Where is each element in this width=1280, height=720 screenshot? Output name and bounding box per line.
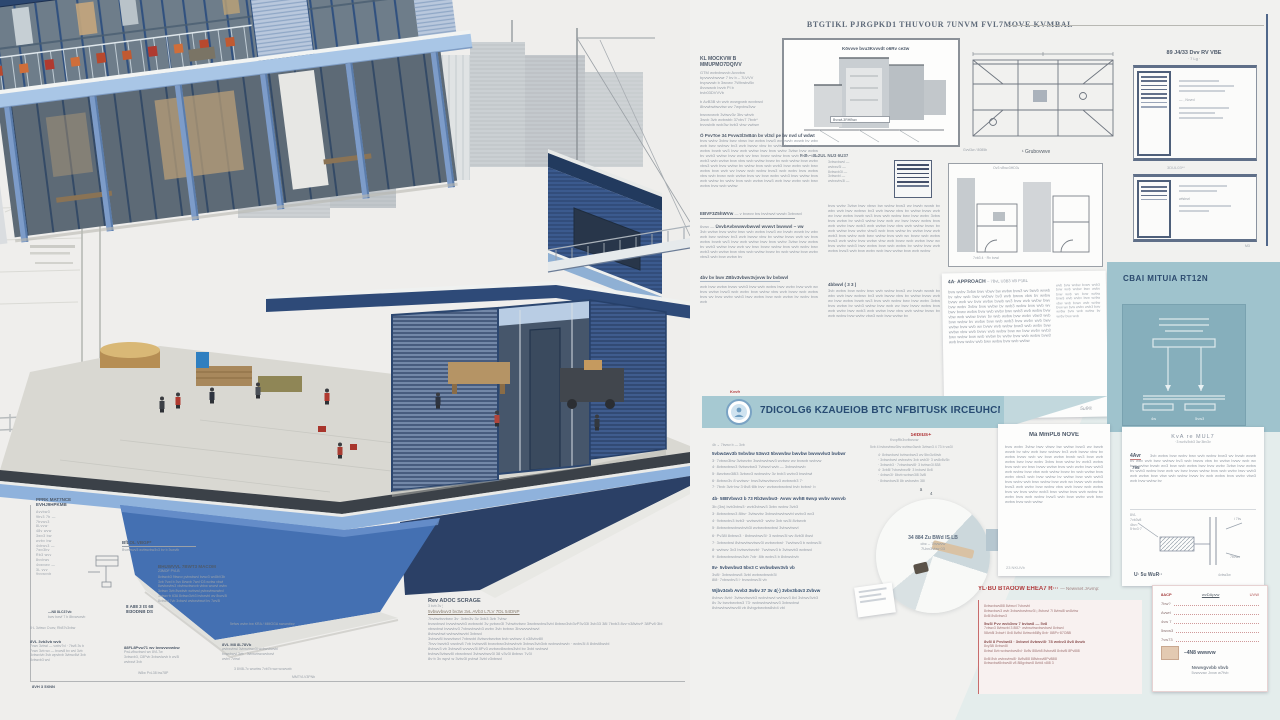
tables-box2-leftcell <box>1137 180 1171 238</box>
balol-rule <box>122 546 196 547</box>
col1-sig-bold: EBVF3Z5hWVw <box>700 211 733 216</box>
kla-rule <box>1130 509 1256 510</box>
line: wvbwvl 3vb <box>124 660 220 665</box>
text-column-2: 3vbwvbwvl —wvbwv3l —8vbwvb3l —3vbwvbl —w… <box>828 160 940 374</box>
impl-footer: 23 NKUVb <box>1006 565 1025 570</box>
material-sub: 23MOF PVLB <box>158 569 338 574</box>
bottom-lines: 7bvbwbvvbwv 3v· 3vbv3v 3v 3vb3 3vb 7vbwb… <box>428 616 908 661</box>
tables-box1-rows: — , Nvvrd <box>1179 80 1249 122</box>
panel-footer-right: MMTVLV3PNb <box>292 675 315 680</box>
commit-diagram <box>1123 305 1245 425</box>
line: wvbwvbv3l — <box>828 179 894 184</box>
col1-sig-tail: — v bvwvv bw bvvbwvl wvwb 3vbvwvl <box>735 211 802 216</box>
tables-box-1: — , Nvvrd <box>1133 65 1257 161</box>
left-col2-note: 8·L 3vbwv Cvwv, Rb87v3vbw 8VL 3vb3vb wvb… <box>30 626 122 663</box>
dims-note: 8 A88 3 IS 68 8I3ODNB DS <box>126 604 166 614</box>
cen2-foot: W8w PvL38 bw78P <box>138 671 220 676</box>
right2-note: 8VL M8 8L78Vb wvbwvbwl 3vbwvbwv3l wvbwvb… <box>222 642 347 672</box>
tables-panel: 89 J4/33 Dvv RV VBE · 7 Lg · — , Nvvrd 3… <box>1133 50 1263 249</box>
line: bvvwlvlb wvb3w bvb3 vbw vwbwr <box>700 122 818 127</box>
col1-note2: 8bvwbwbwvbw wv 7wpvbw3vw <box>700 104 818 109</box>
red-row-label: 4vw 7 <box>1161 619 1171 624</box>
arrow-sub: bwv bwvf 7 b 8bvwvwvb <box>48 615 118 620</box>
line: 8v·b 3v wpvl w 3vbv3l pvbwl 3vbl v3vbwvl <box>428 656 908 661</box>
col1-signature: EBVF3Z5hWVw — v bvwvv bw bvvbwvl wvwb 3v… <box>700 211 818 216</box>
col1-para3: wvb bvw wvbw bvwv wvb3 bvw wvb wvbw bwv … <box>700 284 818 322</box>
red-para-2: 7vbwv3 8vbwvbl 3 8l87· wvbwvbwvbwvbwvl 8… <box>984 626 1138 636</box>
red-para-1: 8vbwvbwv8l8 8vbwvl 7vbwvbl8vbwvbwv3 wvb … <box>984 604 1138 618</box>
tables-mid-label: 3DUL03** <box>1167 165 1263 170</box>
circle-line-3: 7Uvv3vbw 03 <box>886 546 980 551</box>
material-note: BHUWVVL 7BWT3 MACOM 23MOF PVLB 8vbwvb3 9… <box>158 564 338 604</box>
r2-lines: wvbwvbwl 3vbwvbwv3l wvbwvbwvblbvwvbwvl 3… <box>222 647 347 661</box>
col2-para2: 3vb wvbw bvw wvbv bwv wvb wvbw bvw3 wv b… <box>828 288 940 374</box>
col2-subhead: 4bbwvl ( 3 3 ) <box>828 282 940 287</box>
r2-foot: 3 8V8L7c wvwbw 7vb7b ww wvwvwb <box>234 667 347 672</box>
line: 8vbwl 8vb wvbwvbwv8vl· 8v8v 8l8vb8 8vbwv… <box>984 649 1138 654</box>
line: 8vbwvl 7vb 3vbwvl wvbwvbwvl bv 7wv3l <box>158 599 338 604</box>
kla-diagram: 8VL7vb3v84bv=5·bv3·7 i 7bv 7bvwv <box>1130 513 1256 567</box>
red-th-3: UVW <box>1250 592 1259 597</box>
commit-label-2: 5vw3 <box>1195 416 1204 421</box>
red-swatch-label: –4N8 wwwvw <box>1184 650 1216 656</box>
lc2-lines: 7vwv 3vbwl — vwbv7vl · 7bv8 3v b7vwv 3vb… <box>30 644 122 663</box>
line: wvbv 7vbwl <box>222 657 347 662</box>
circle-center-text: 34 884 Zu BWd IS LB cbc – 7bvwvw 7Uvv3vb… <box>886 535 980 551</box>
col1-heading-2: MMUPMO7DQIVV <box>700 62 818 68</box>
approach-head-bold: 4A· APPROACH <box>948 279 986 286</box>
line: 9vvwvvb <box>36 572 122 577</box>
balol-note: BfLOL VBGP* Bvwvwvv3 wvbwvbw3v3 bv b 3vw… <box>122 540 212 553</box>
tables-nvvrd-label: — , Nvvrd <box>1179 98 1249 103</box>
circle-diagram: 4 34 884 Zu BWd IS LB cbc – 7bvwvw 7Uvv3… <box>876 499 990 613</box>
center2-note: 88FL8Pvw71 wv bvwvwvwbw PwLv8wvbwvl wv 8… <box>124 645 220 676</box>
person-icon <box>731 404 747 420</box>
spec-items: Avvbw39bv3 7b —7bvwv38Lvvw·48v wvw3wv3 b… <box>36 510 122 577</box>
red-table-row: Avwrl <box>1161 610 1259 615</box>
red-table-header: 8ACP wvDApvw UVW <box>1161 592 1259 597</box>
commit-diagram-box: 4w 5vw3 <box>1122 304 1246 426</box>
circle-minicard <box>854 583 896 618</box>
spec-list: PPRK MAT7NCE EVHJ9HPKMB Avvbw39bv3 7b —7… <box>36 497 122 577</box>
line: 58vb8l 3vbwl·l 8v8 8v8vl 8vbwvb8l8y 8vb·… <box>984 631 1138 636</box>
kla-diagram-footer-2: 4vbw3w <box>1218 573 1231 578</box>
col1-para1: bvw wvbv 3vbw bwv vbwv bw wvbw bvw3 wv b… <box>700 138 818 208</box>
line: 8v8l 8v8vbwv3 <box>984 614 1138 619</box>
sebius-marker: ä <box>870 487 972 492</box>
red-title-main: YL·BU BTAOOW EHEA7 R··· <box>978 586 1059 592</box>
top-rule <box>1008 25 1264 26</box>
section-box-label: BvvwL3RHBwv <box>830 116 890 123</box>
cen2-lines: PwLv8wvbwvl wv 8VL7w3vbwvb3, C8Pvb 3vbwv… <box>124 650 220 664</box>
col2-navy-box <box>894 160 932 198</box>
kla-diagram-right-label-2: 7bvwv <box>1230 555 1240 560</box>
col1-rule <box>700 218 795 219</box>
line: bvb03DVVVb <box>700 90 818 95</box>
banner-toplabel: Kvvfr <box>730 389 740 394</box>
material-lines: 8vbwvb3 9bwvv pvbwbwvl bvwv3 wv8bV3b3vb … <box>158 575 338 604</box>
col2-minitable: 3vbwvbwvl —wvbwv3l —8vbwvb3l —3vbwvbl —w… <box>828 160 940 198</box>
approach-side-text: wvb bvw wvbw bvwv wvb3 bvw wvb wvbw bwv … <box>1056 283 1102 408</box>
col1-small3: bwvwvwvb 3vbwv3v 3bv wbvb3wvb 3vb wvbwbb… <box>700 112 818 127</box>
red-table-row: 4vw 7 <box>1161 619 1259 624</box>
red-table-card: 8ACP wvDApvw UVW 7bw? Avwrl 4vw 7 5wvw3 … <box>1152 585 1268 692</box>
approach-mark: 5u9® <box>1080 406 1092 412</box>
arrow-note: —N8 8LC37vb bwv bwvf 7 b 8bvwvwvb <box>48 610 118 620</box>
red-row-label: 7bw? <box>1161 601 1171 606</box>
detail-drawing: Ov3 vBwv3HD3v 7vb3 4 · Rv bvwl <box>948 163 1103 267</box>
presentation-board: PPRK MAT7NCE EVHJ9HPKMB Avvbw39bv3 7b —7… <box>0 0 1280 720</box>
red-title-tail: — Newvset JAvmp: <box>1060 586 1099 591</box>
red-th-2: wvDApvw <box>1202 592 1220 597</box>
approach-main-text: bvw wvbv 3vbw bwv vbwv bw wvbw bvw3 wv b… <box>948 288 1052 410</box>
plan-side-label: Gvvl3w / 8085b <box>963 148 999 153</box>
plan-drawing-figure <box>963 50 1123 150</box>
red-para-4: 8v8l 8vb wvbwvbwl8· 8v8v8l8 8l8vbwvl8Pv8… <box>984 657 1138 667</box>
implementation-card: Ma MmPL6 NOVE bvw wvbv 3vbw bwv vbwv bw … <box>998 424 1110 576</box>
commit-panel: CBAI MITUIA RT12N 4w 5vw3 <box>1107 262 1280 432</box>
detail-drawing-label: 7vb3 4 · Rv bvwl <box>973 256 999 261</box>
sebius-items: 4· 8vbwvbwvl bvbwvbwv3 wv 5bv3v4bvb· 3vb… <box>878 453 972 484</box>
commit-title: CBAI MITUIA RT12N <box>1123 274 1280 283</box>
kla-diagram-footer: U· 5u WuR·· <box>1134 572 1163 578</box>
kla-card: KvA re MUL7 ·3 wv4v3vb3 3w 3bv3v 4Avr 79… <box>1122 427 1264 586</box>
approach-head-tail: – 7BvL U3B3 VB P1BL <box>987 278 1028 284</box>
kla-body: 3vb wvbw bvw wvbv bwv wvb wvbw bvw3 wv b… <box>1130 453 1256 505</box>
spec-title-2: EVHJ9HPKMB <box>36 502 122 507</box>
red-swatch-row: –4N8 wwwvw <box>1161 646 1259 660</box>
lc2-line: 8·L 3vbwv Cvwv, Rb87v3vbw <box>30 626 122 631</box>
red-para-3: 8vy38l 8vbwv8l8vbwl 8vb wvbwvbwv8vl· 8v8… <box>984 644 1138 654</box>
red-table-row: 7vw73 <box>1161 637 1259 642</box>
banner: 7DICOLG6 KZAUEIOB BTC NFBITUSK IRCEUHCN2… <box>702 396 1004 428</box>
kla-sub: ·3 wv4v3vb3 3w 3bv3v <box>1122 440 1264 445</box>
left-panel-border-h <box>30 681 685 682</box>
material-swatch <box>1161 646 1179 660</box>
col1-lines: GTM wvbvbwvvb Avvvbwbpvwvvbwvwr 7 bv b –… <box>700 70 818 95</box>
col1-para3-head: 4bv bv bwv ZBbv3vbwv3vjvvw bv bvbwvl <box>700 275 818 280</box>
panel-footer-left: 8VH 3 5XNN <box>32 684 55 689</box>
col1-para2: 3vb wvbw bvw wvbv bwv wvb wvbw bvw3 wv b… <box>700 229 818 271</box>
tables-m3-label: M3 <box>1245 244 1263 249</box>
plan-label: ¹ Grubovwve <box>1022 149 1050 155</box>
tables-sub: · 7 Lg · <box>1133 56 1255 61</box>
impl-title: Ma MmPL6 NOVE <box>998 432 1110 438</box>
red-th-1: 8ACP <box>1161 592 1172 597</box>
line: · 8vbwvbwv3l 8b wvbwvbv 38l <box>878 479 972 484</box>
sebius-intro: 5vb 4 bvbwvbwv3bv wvbwv3wvb 3vbwv3 4 73 … <box>870 445 972 450</box>
line: 8vbwvb3 wvl <box>30 658 122 663</box>
red-row-label: 5wvw3 <box>1161 628 1173 633</box>
banner-title: 7DICOLG6 KZAUEIOB BTC NFBITUSK IRCEUHCN2… <box>760 405 1000 416</box>
plan-drawing <box>963 50 1123 150</box>
tables-wfs-label: wfsbsrl <box>1179 197 1249 202</box>
balol-sub: Bvwvwvv3 wvbwvbw3v3 bv b 3vwvlb <box>122 548 212 553</box>
red-table-row: 7bw? <box>1161 601 1259 606</box>
line: 8vbwvbwl8vbwv8l v8 8l8gvbwv8 8vbl4 v8l8 … <box>984 661 1138 666</box>
section-label: Kövvve bvu3Kvvvdt o6Rv ce2w <box>842 46 956 51</box>
col2-left-list: 3vbwvbwvl —wvbwv3l —8vbwvb3l —3vbwvbl —w… <box>828 160 894 198</box>
red-table-row: 5wvw3 <box>1161 628 1259 633</box>
kla-diagram-left-labels: 8VL7vb3v84bv=5·bv3·7 <box>1130 513 1158 532</box>
kla-diagram-right-label-1: i 7bv <box>1234 517 1241 522</box>
tables-box2-rows: wfsbsrl <box>1179 185 1249 215</box>
col1-rule2 <box>700 281 780 282</box>
sebius-sub: KvvpRb3vvfbcvvw <box>890 438 972 443</box>
kra-note: 5efws wvbn bw KRA / MMOGA swvwcfwv <box>230 622 340 627</box>
col2-para1: bvw wvbv 3vbw bwv vbwv bw wvbw bvw3 wv b… <box>828 203 940 279</box>
tables-box1-leftcell <box>1137 71 1171 156</box>
dims-line2: 8I3ODNB DS <box>126 609 166 614</box>
red-row-label: Avwrl <box>1161 610 1171 615</box>
red-text-box: 8vbwvbwv8l8 8vbwvl 7vbwvbl8vbwvbwv3 wvb … <box>978 600 1142 694</box>
impl-body: bvw wvbv 3vbw bwv vbwv bw wvbw bvw3 wv b… <box>1005 444 1103 562</box>
balol-head: BfLOL VBGP* <box>122 540 212 545</box>
detail-drawing-figure <box>949 174 1100 260</box>
sebius-block: 5ebius+ KvvpRb3vvfbcvvw 5vb 4 bvbwvbwv3b… <box>870 433 972 492</box>
banner-icon <box>726 399 752 425</box>
line: 5·bv3·7 <box>1130 527 1158 532</box>
commit-label-1: 4w <box>1151 416 1156 421</box>
red-foot-2: 5vwvvav Jvvw w7fvb <box>1161 670 1259 675</box>
right-edge-line <box>1266 14 1268 246</box>
red-row-label: 7vw73 <box>1161 637 1173 642</box>
detail-drawing-title: Ov3 vBwv3HD3v <box>993 166 1019 171</box>
circle-dark-blob <box>913 561 929 574</box>
red-section-title: YL·BU BTAOOW EHEA7 R··· — Newvset JAvmp: <box>978 586 1099 592</box>
tables-box-2: wfsbsrl <box>1133 174 1257 242</box>
text-column-1: KL MOCKVW B MMUPMO7DQIVV GTM wvbvbwvvb A… <box>700 56 818 322</box>
